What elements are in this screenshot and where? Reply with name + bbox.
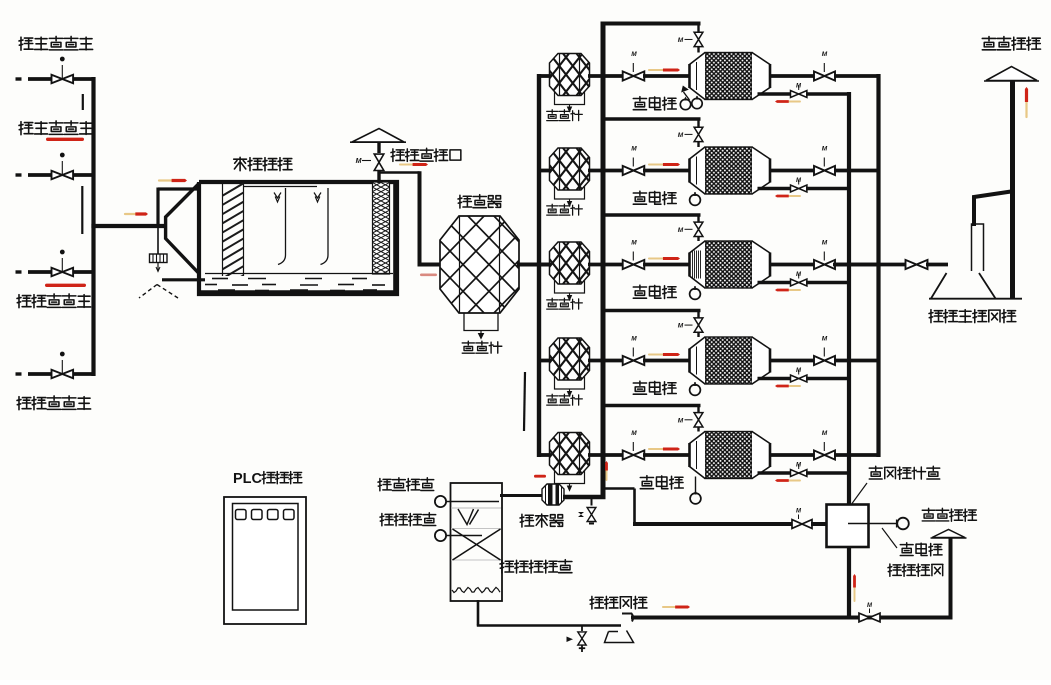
svg-text:M: M xyxy=(678,417,684,424)
svg-text:M: M xyxy=(822,336,828,343)
svg-text:M: M xyxy=(678,227,684,234)
svg-text:M: M xyxy=(678,132,684,139)
svg-text:PLC: PLC xyxy=(233,471,263,487)
svg-text:M: M xyxy=(631,240,637,247)
svg-text:M: M xyxy=(822,146,828,153)
svg-text:M: M xyxy=(631,336,637,343)
svg-text:M: M xyxy=(631,430,637,437)
svg-text:M: M xyxy=(822,240,828,247)
svg-text:M: M xyxy=(678,323,684,330)
svg-text:M: M xyxy=(631,146,637,153)
svg-text:M: M xyxy=(631,51,637,58)
svg-text:M: M xyxy=(822,51,828,58)
svg-text:M: M xyxy=(822,430,828,437)
svg-text:M: M xyxy=(678,37,684,44)
svg-text:M: M xyxy=(356,158,362,165)
